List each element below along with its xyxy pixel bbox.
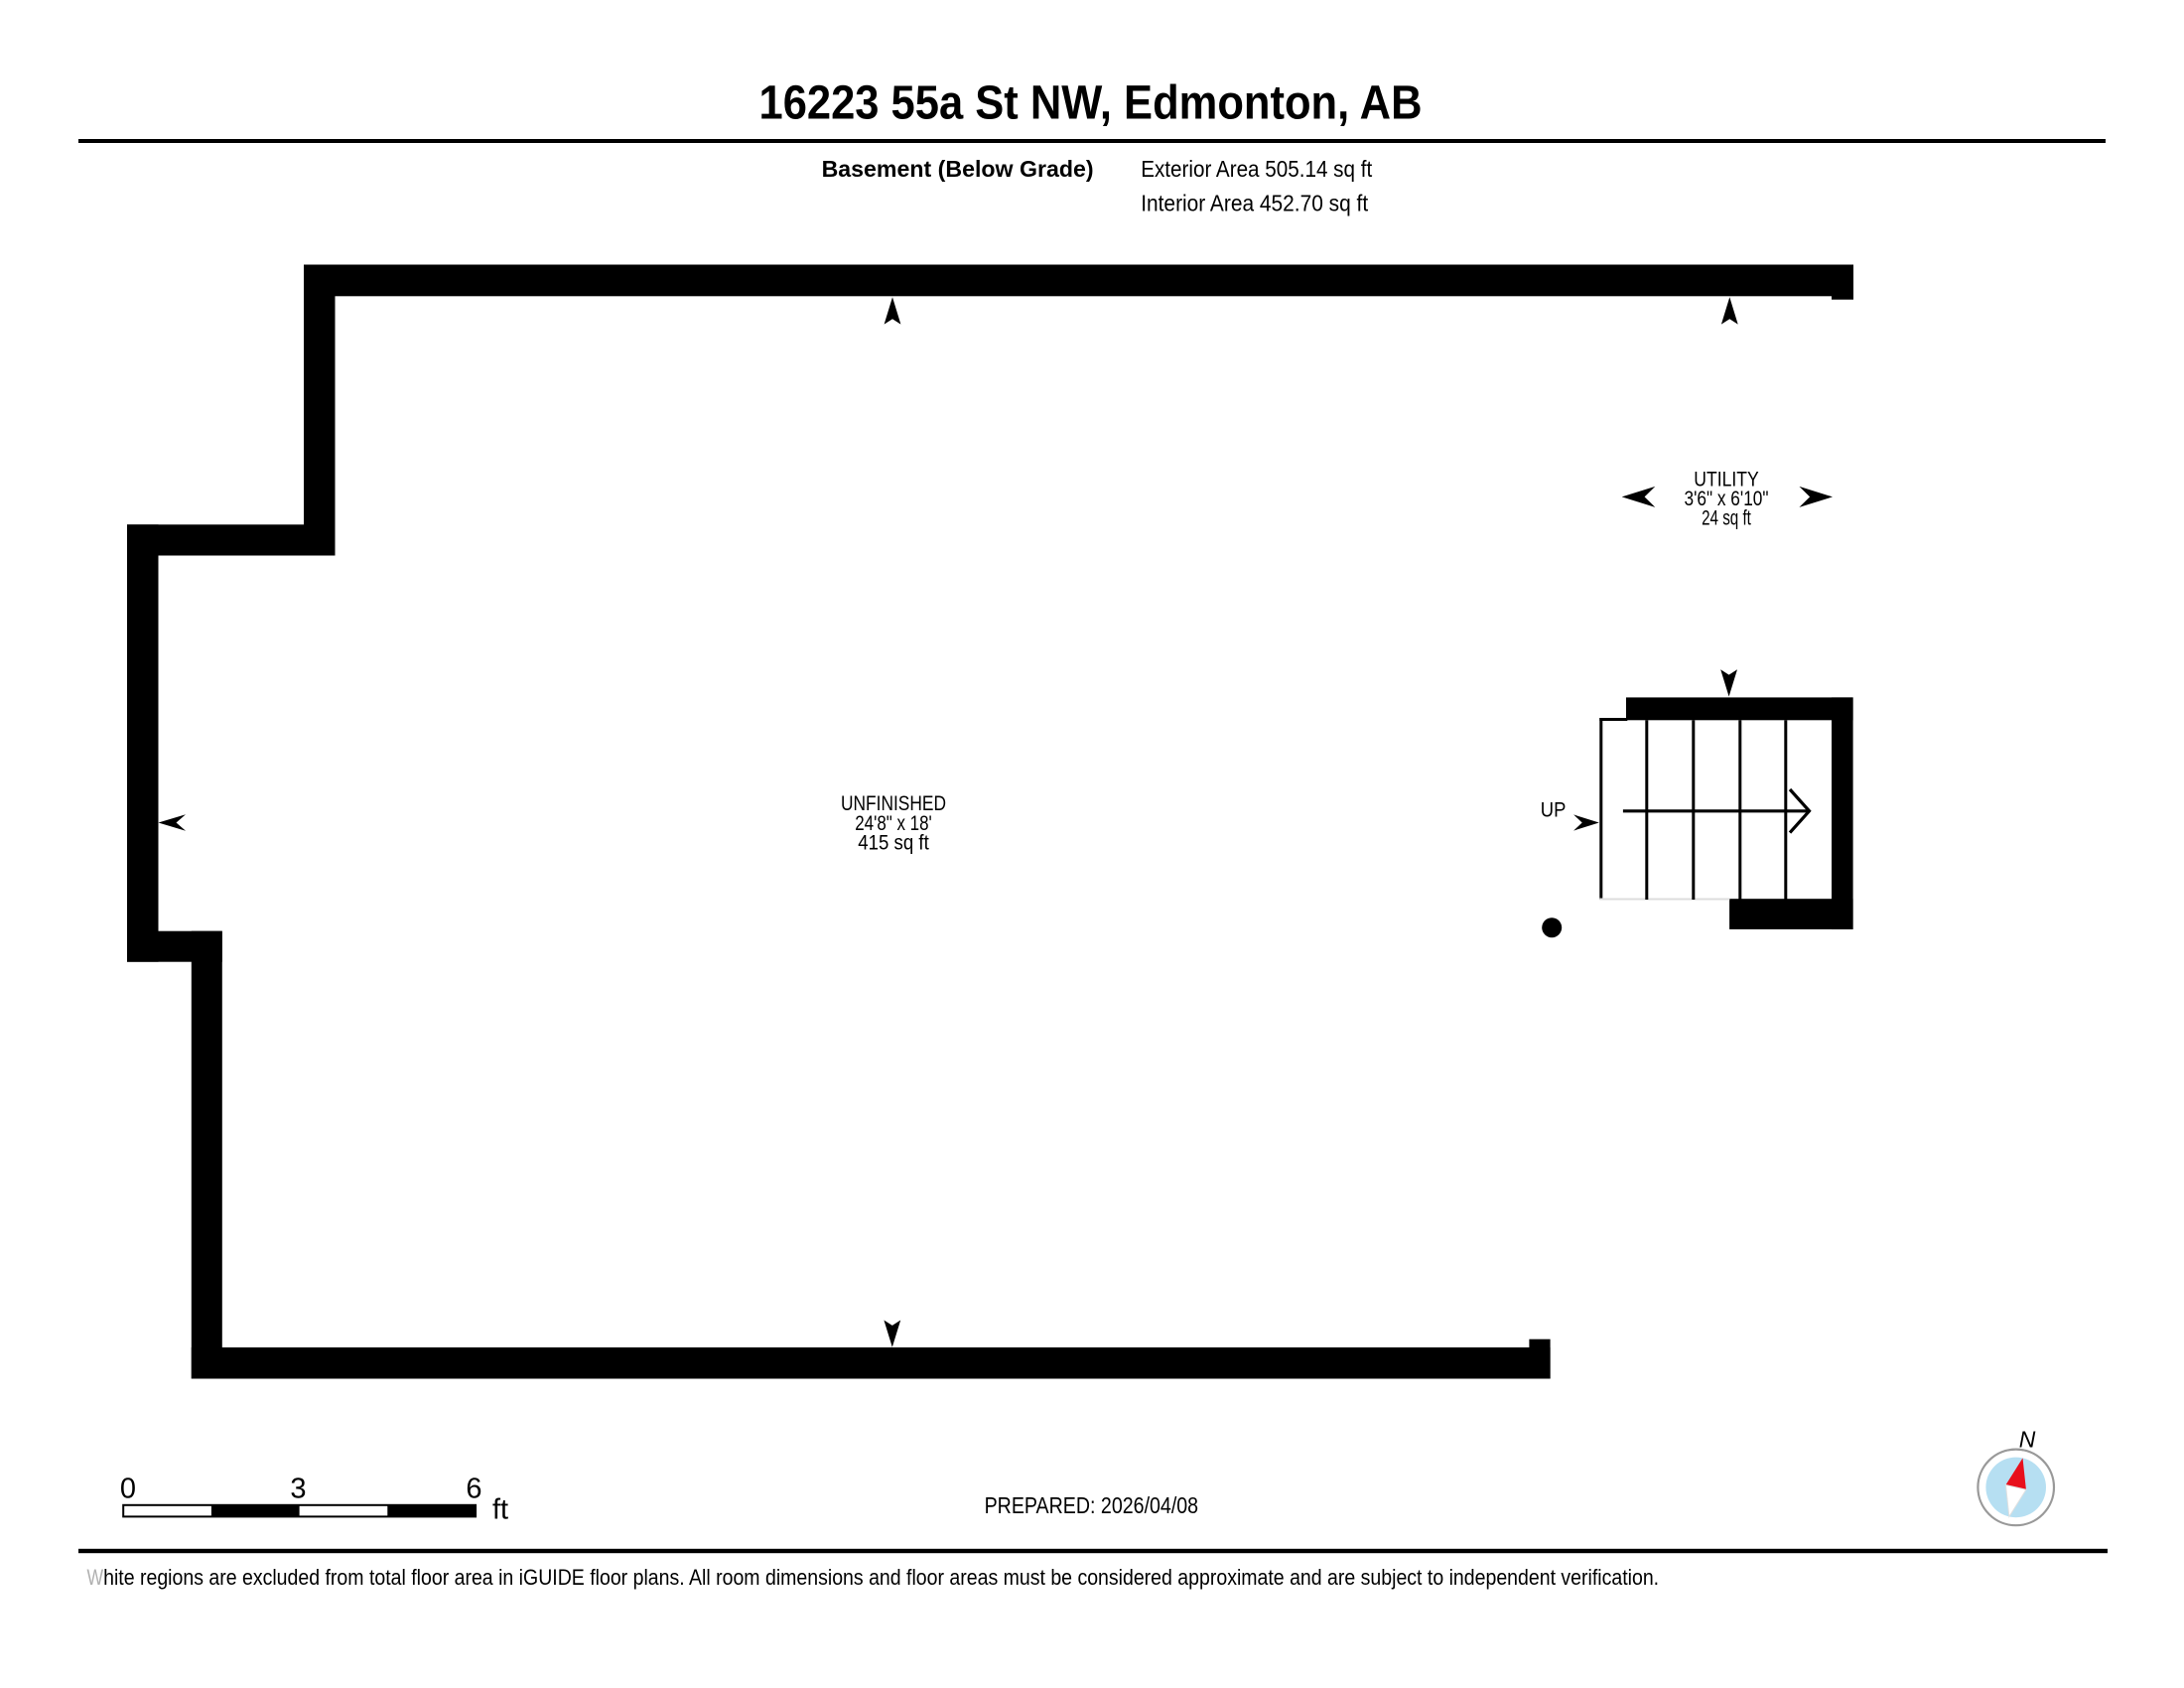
svg-text:hite regions are excluded from: hite regions are excluded from total flo…: [103, 1565, 1659, 1590]
svg-text:16223 55a St NW, Edmonton, AB: 16223 55a St NW, Edmonton, AB: [759, 76, 1423, 129]
svg-text:Basement (Below Grade): Basement (Below Grade): [822, 156, 1094, 182]
svg-text:UP: UP: [1541, 798, 1567, 821]
svg-text:ft: ft: [492, 1494, 508, 1526]
svg-text:Exterior Area 505.14 sq ft: Exterior Area 505.14 sq ft: [1141, 156, 1373, 182]
svg-text:24 sq ft: 24 sq ft: [1702, 506, 1751, 529]
svg-text:N: N: [2019, 1426, 2036, 1452]
svg-text:0: 0: [120, 1474, 136, 1505]
svg-text:415 sq ft: 415 sq ft: [858, 831, 929, 854]
svg-text:3: 3: [290, 1474, 306, 1505]
svg-text:W: W: [87, 1565, 104, 1590]
svg-text:Interior Area 452.70 sq ft: Interior Area 452.70 sq ft: [1141, 190, 1369, 215]
svg-text:6: 6: [466, 1474, 481, 1505]
svg-text:PREPARED: 2026/04/08: PREPARED: 2026/04/08: [985, 1492, 1199, 1518]
